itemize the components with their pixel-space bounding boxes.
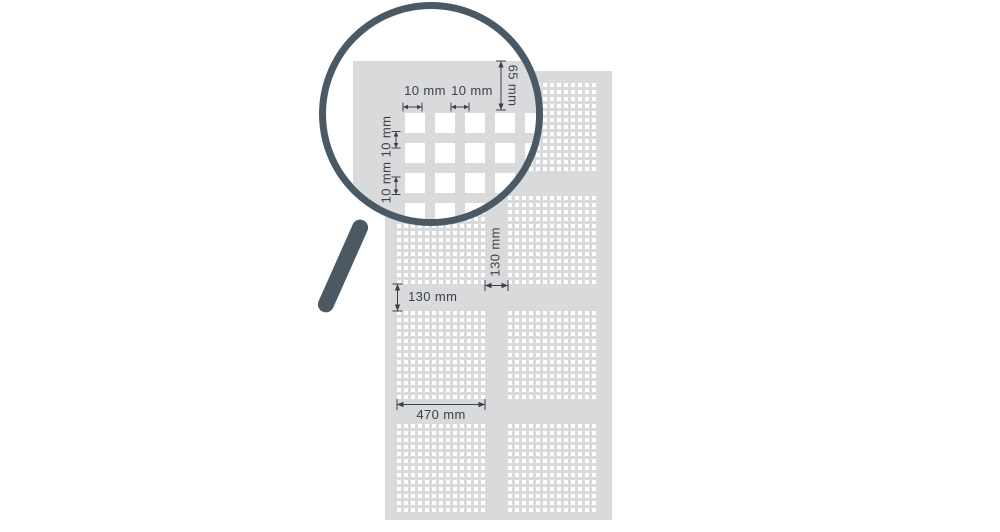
magnifier-dimension-lines	[326, 9, 536, 219]
hole-gap-v-lower-dimension-label: 10 mm	[379, 160, 394, 206]
hole-gap-v-upper-dimension-label: 10 mm	[379, 114, 394, 160]
perforation-diagram: 130 mm 130 mm 470 mm	[0, 0, 1000, 532]
hole-width-dimension-label: 10 mm	[404, 83, 446, 98]
magnifier-lens-icon: 10 mm 10 mm 10 mm 10 mm 65 mm	[319, 2, 543, 226]
column-gap-dimension-label: 130 mm	[488, 229, 503, 277]
block-width-dimension-label: 470 mm	[404, 407, 478, 422]
edge-margin-dimension-label: 65 mm	[506, 63, 521, 109]
hole-gap-h-dimension-label: 10 mm	[451, 83, 493, 98]
row-gap-dimension-label: 130 mm	[408, 289, 457, 304]
